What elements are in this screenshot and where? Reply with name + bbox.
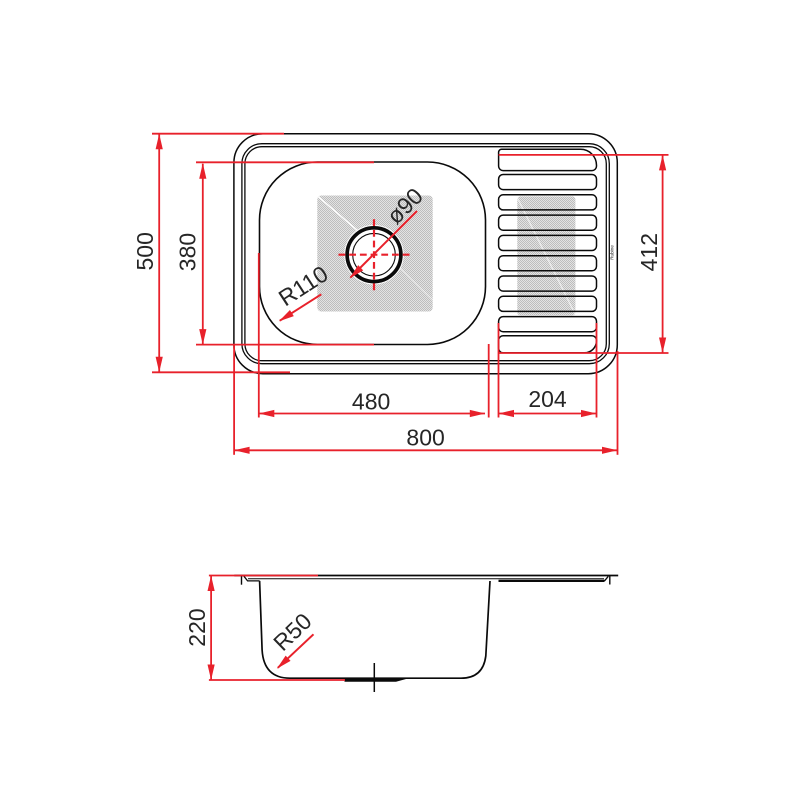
svg-text:412: 412: [636, 233, 662, 271]
svg-text:800: 800: [406, 424, 444, 450]
svg-text:500: 500: [132, 232, 158, 270]
svg-text:204: 204: [528, 386, 567, 412]
svg-text:380: 380: [175, 233, 201, 271]
svg-text:Rubine: Rubine: [609, 245, 614, 260]
svg-text:220: 220: [184, 608, 210, 646]
svg-text:480: 480: [352, 388, 390, 414]
svg-text:R50: R50: [268, 608, 316, 656]
